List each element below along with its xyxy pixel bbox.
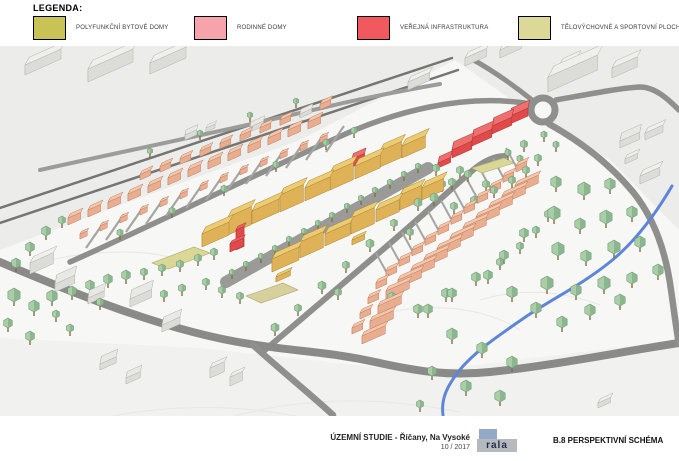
legend-label: TĚLOVÝCHOVNÉ A SPORTOVNÍ PLOCHY bbox=[561, 25, 679, 31]
legend-label: POLYFUNKČNÍ BYTOVÉ DOMY bbox=[76, 25, 168, 31]
legend-swatch bbox=[518, 16, 551, 40]
studio-logo: rala bbox=[477, 429, 517, 455]
title-block: ÚZEMNÍ STUDIE - Říčany, Na Vysoké 10 / 2… bbox=[0, 416, 679, 461]
project-title: ÚZEMNÍ STUDIE - Říčany, Na Vysoké bbox=[330, 433, 470, 442]
project-date: 10 / 2017 bbox=[441, 444, 470, 451]
sheet-title: B.8 PERSPEKTIVNÍ SCHÉMA bbox=[553, 436, 663, 445]
logo-text: rala bbox=[486, 441, 508, 451]
perspective-scheme-drawing bbox=[0, 46, 679, 417]
legend-item: VEŘEJNÁ INFRASTRUKTURA bbox=[357, 16, 488, 40]
logo-band: rala bbox=[477, 439, 517, 452]
legend-label: VEŘEJNÁ INFRASTRUKTURA bbox=[400, 25, 488, 31]
legend-swatch bbox=[33, 16, 66, 40]
plan-sheet: LEGENDA: POLYFUNKČNÍ BYTOVÉ DOMYRODINNÉ … bbox=[0, 0, 679, 461]
legend-swatch bbox=[357, 16, 390, 40]
legend: LEGENDA: POLYFUNKČNÍ BYTOVÉ DOMYRODINNÉ … bbox=[0, 0, 679, 46]
legend-item: POLYFUNKČNÍ BYTOVÉ DOMY bbox=[33, 16, 168, 40]
legend-label: RODINNÉ DOMY bbox=[237, 25, 287, 31]
logo-blue-square bbox=[479, 429, 497, 439]
legend-item: TĚLOVÝCHOVNÉ A SPORTOVNÍ PLOCHY bbox=[518, 16, 679, 40]
legend-title: LEGENDA: bbox=[33, 3, 82, 13]
legend-swatch bbox=[194, 16, 227, 40]
legend-item: RODINNÉ DOMY bbox=[194, 16, 287, 40]
